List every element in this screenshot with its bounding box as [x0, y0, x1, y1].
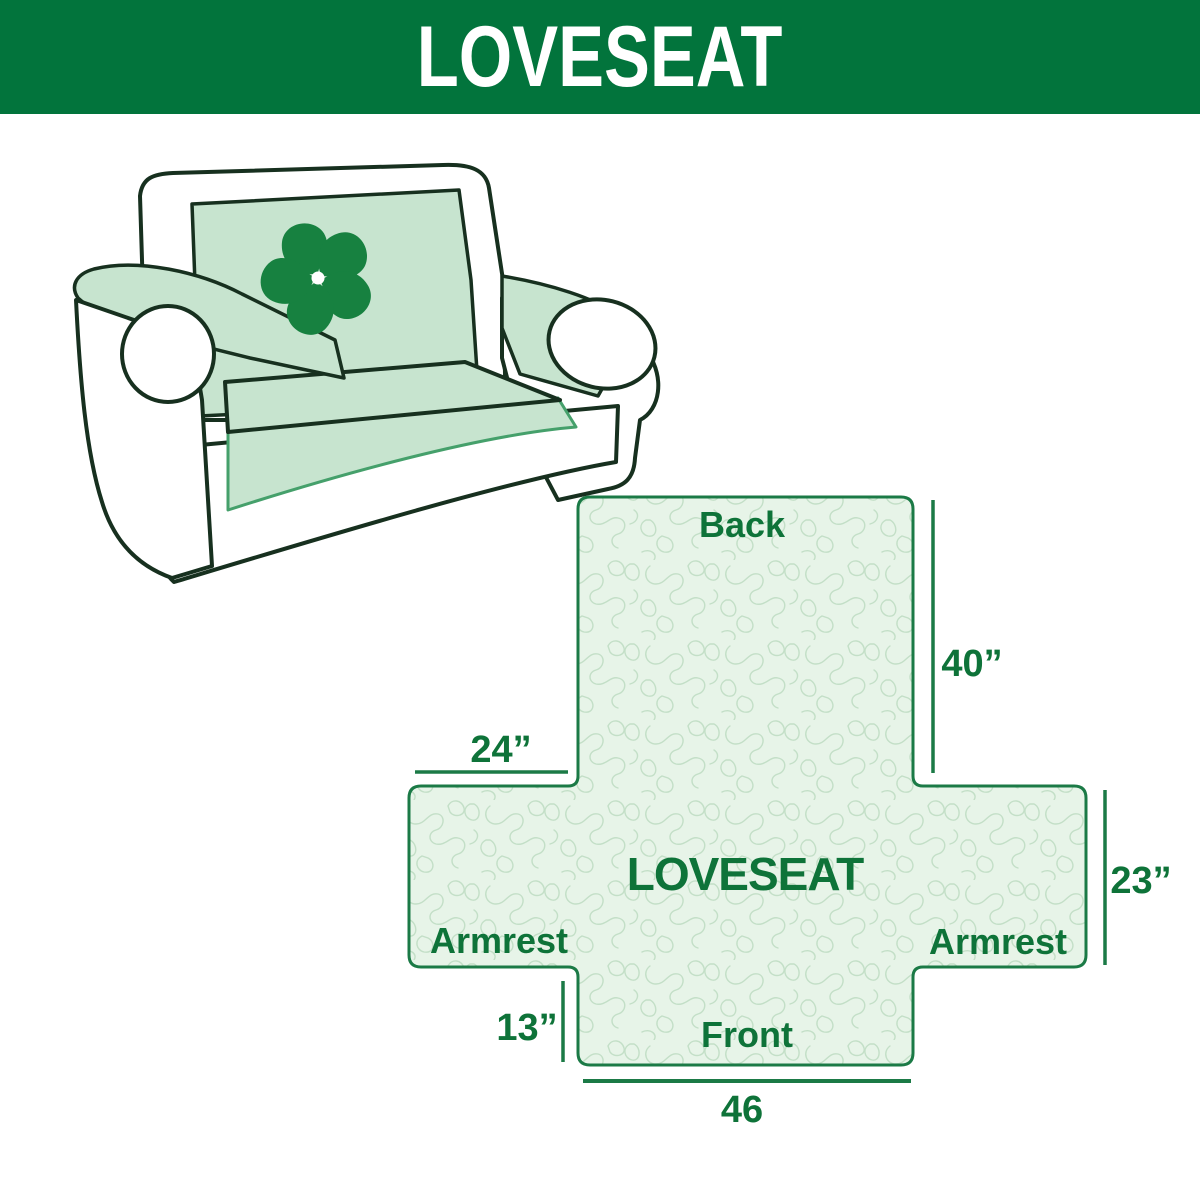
cover-outline-shape [409, 497, 1086, 1065]
dim-armrest-height-label: 23” [1110, 862, 1171, 900]
back-label: Back [699, 507, 785, 543]
dim-armrest-width-label: 24” [470, 731, 531, 769]
armrest-left-label: Armrest [430, 923, 568, 959]
cover-dimension-diagram [0, 0, 1200, 1200]
dim-front-width-label: 46 [721, 1091, 763, 1129]
front-label: Front [701, 1017, 793, 1053]
armrest-right-label: Armrest [929, 924, 1067, 960]
diagram-center-label: LOVESEAT [627, 851, 864, 897]
dim-back-height-label: 40” [941, 645, 1002, 683]
dim-front-height-label: 13” [496, 1009, 557, 1047]
infographic-page: LOVESEAT [0, 0, 1200, 1200]
